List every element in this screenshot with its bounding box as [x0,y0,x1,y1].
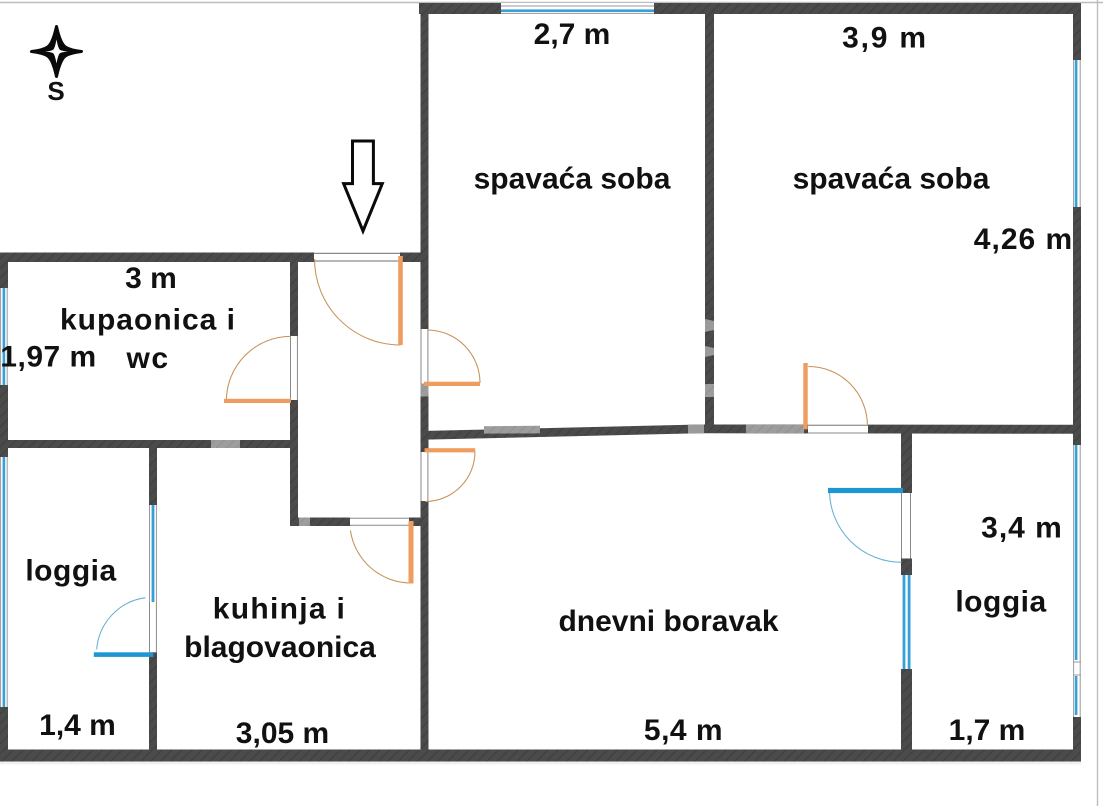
svg-text:5,4 m: 5,4 m [644,714,723,747]
svg-text:loggia: loggia [955,586,1046,619]
svg-text:loggia: loggia [25,555,116,588]
svg-text:3 m: 3 m [125,262,177,295]
svg-text:S: S [47,76,64,106]
svg-text:wc: wc [125,342,169,375]
svg-text:kuhinja i: kuhinja i [213,593,346,626]
svg-text:3,9 m: 3,9 m [842,22,928,55]
svg-text:2,7 m: 2,7 m [534,18,611,51]
svg-text:dnevni boravak: dnevni boravak [558,605,778,638]
svg-text:blagovaonica: blagovaonica [184,631,376,664]
svg-text:spavaća soba: spavaća soba [474,163,671,196]
svg-text:kupaonica i: kupaonica i [60,304,236,337]
svg-text:spavaća soba: spavaća soba [793,163,990,196]
svg-text:1,97 m: 1,97 m [0,341,96,374]
svg-text:1,7 m: 1,7 m [949,714,1026,747]
svg-text:1,4 m: 1,4 m [39,709,116,742]
svg-text:3,4 m: 3,4 m [981,512,1063,545]
svg-text:4,26 m: 4,26 m [974,223,1073,256]
svg-text:3,05 m: 3,05 m [236,717,329,750]
